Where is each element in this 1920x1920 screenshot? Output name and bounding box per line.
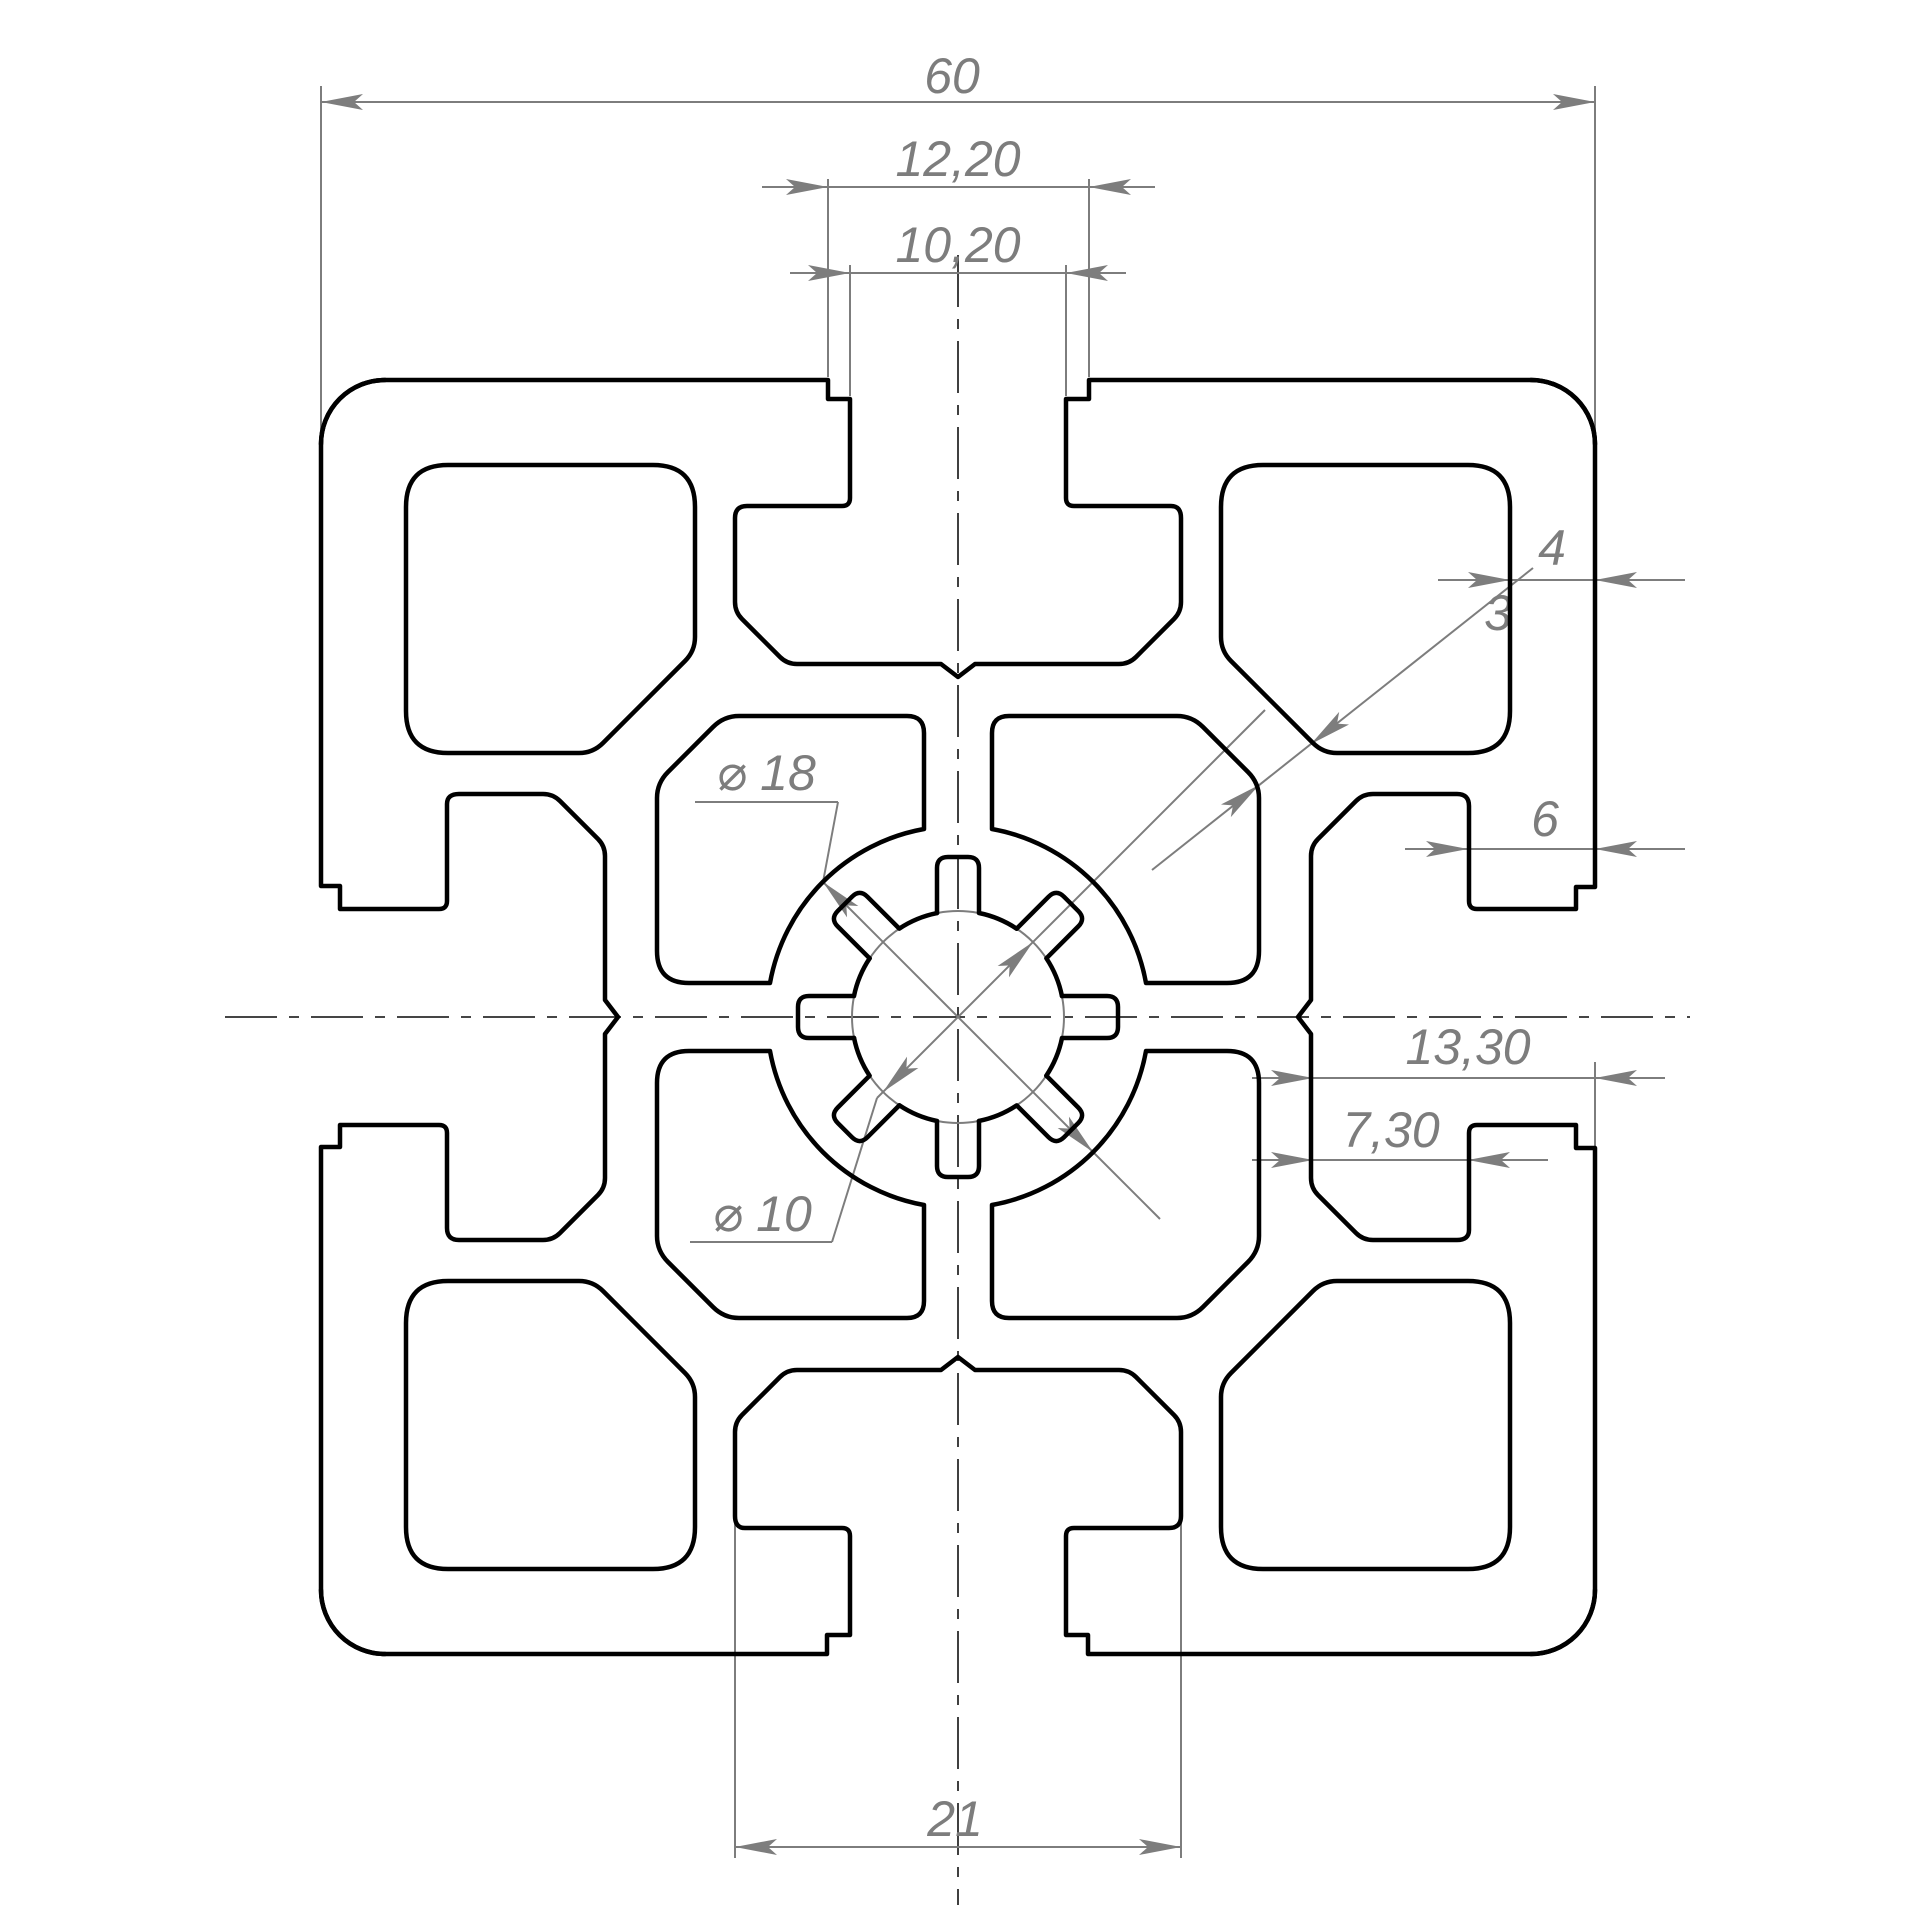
label-core-outer-dia: ⌀ 18 bbox=[716, 745, 816, 801]
label-slot-opening-inner: 10,20 bbox=[895, 217, 1020, 273]
bore-flute bbox=[937, 857, 1017, 929]
bore-flute bbox=[803, 1038, 910, 1145]
bore-flute bbox=[1046, 996, 1118, 1076]
label-slot-cavity-height: 7,30 bbox=[1342, 1102, 1440, 1158]
arrowheads bbox=[321, 94, 1637, 1855]
label-flange-depth: 6 bbox=[1531, 791, 1559, 847]
bore-flute bbox=[899, 1105, 979, 1177]
label-outer-wall: 4 bbox=[1538, 520, 1566, 576]
bore-flute bbox=[1006, 889, 1113, 996]
dimension-labels: 60 12,20 10,20 4 3 6 ⌀ 18 ⌀ 10 13,30 7,3… bbox=[712, 48, 1566, 1847]
profile-drawing-svg: 60 12,20 10,20 4 3 6 ⌀ 18 ⌀ 10 13,30 7,3… bbox=[0, 0, 1920, 1920]
label-slot-cavity-width: 21 bbox=[926, 1791, 983, 1847]
bore-flute bbox=[798, 958, 870, 1038]
label-overall-width: 60 bbox=[924, 48, 980, 104]
label-slot-opening-outer: 12,20 bbox=[895, 131, 1020, 187]
dim-diagonal-web bbox=[1152, 568, 1533, 870]
drawing-page: 60 12,20 10,20 4 3 6 ⌀ 18 ⌀ 10 13,30 7,3… bbox=[0, 0, 1920, 1920]
label-slot-total-depth: 13,30 bbox=[1405, 1019, 1530, 1075]
label-core-bore-dia: ⌀ 10 bbox=[712, 1186, 812, 1242]
annotations bbox=[321, 86, 1685, 1858]
